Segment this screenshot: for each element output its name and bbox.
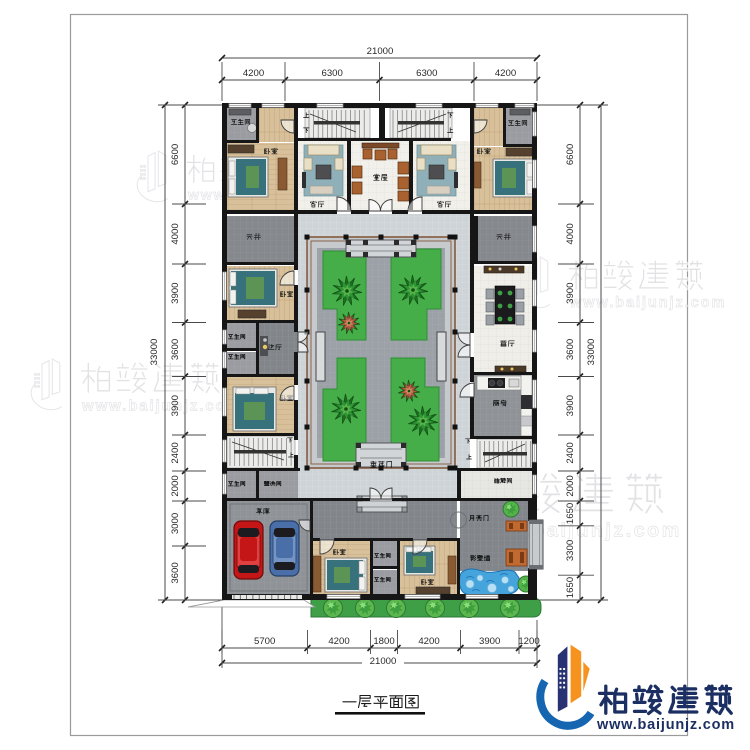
svg-text:1650: 1650 bbox=[565, 503, 576, 524]
svg-text:www.baijunjz.com: www.baijunjz.com bbox=[81, 398, 242, 415]
svg-text:33000: 33000 bbox=[149, 339, 160, 366]
svg-text:6600: 6600 bbox=[170, 144, 181, 165]
svg-text:4000: 4000 bbox=[565, 223, 576, 244]
svg-text:3600: 3600 bbox=[170, 339, 181, 360]
svg-text:1800: 1800 bbox=[373, 636, 394, 647]
svg-text:3600: 3600 bbox=[170, 562, 181, 583]
svg-text:21000: 21000 bbox=[370, 656, 397, 667]
svg-text:5700: 5700 bbox=[254, 636, 275, 647]
svg-text:6300: 6300 bbox=[416, 68, 437, 79]
svg-text:4000: 4000 bbox=[170, 223, 181, 244]
svg-text:3000: 3000 bbox=[170, 513, 181, 534]
svg-text:3900: 3900 bbox=[479, 636, 500, 647]
svg-text:1650: 1650 bbox=[565, 577, 576, 598]
svg-text:www.baijunjz.com: www.baijunjz.com bbox=[596, 717, 735, 733]
svg-text:4200: 4200 bbox=[243, 68, 264, 79]
svg-text:1200: 1200 bbox=[518, 636, 539, 647]
svg-text:4200: 4200 bbox=[328, 636, 349, 647]
svg-text:4200: 4200 bbox=[495, 68, 516, 79]
svg-text:6600: 6600 bbox=[565, 144, 576, 165]
svg-text:3300: 3300 bbox=[565, 540, 576, 561]
svg-text:2400: 2400 bbox=[170, 442, 181, 463]
svg-text:www.baijunjz.com: www.baijunjz.com bbox=[569, 295, 726, 311]
svg-text:3900: 3900 bbox=[170, 395, 181, 416]
svg-text:33000: 33000 bbox=[586, 339, 597, 366]
svg-text:2000: 2000 bbox=[170, 475, 181, 496]
svg-text:3900: 3900 bbox=[565, 283, 576, 304]
svg-text:6300: 6300 bbox=[322, 68, 343, 79]
svg-text:2000: 2000 bbox=[565, 475, 576, 496]
svg-text:3900: 3900 bbox=[565, 395, 576, 416]
svg-text:2400: 2400 bbox=[565, 442, 576, 463]
svg-text:21000: 21000 bbox=[367, 46, 394, 57]
svg-text:3900: 3900 bbox=[170, 283, 181, 304]
svg-text:4200: 4200 bbox=[418, 636, 439, 647]
svg-text:3600: 3600 bbox=[565, 339, 576, 360]
